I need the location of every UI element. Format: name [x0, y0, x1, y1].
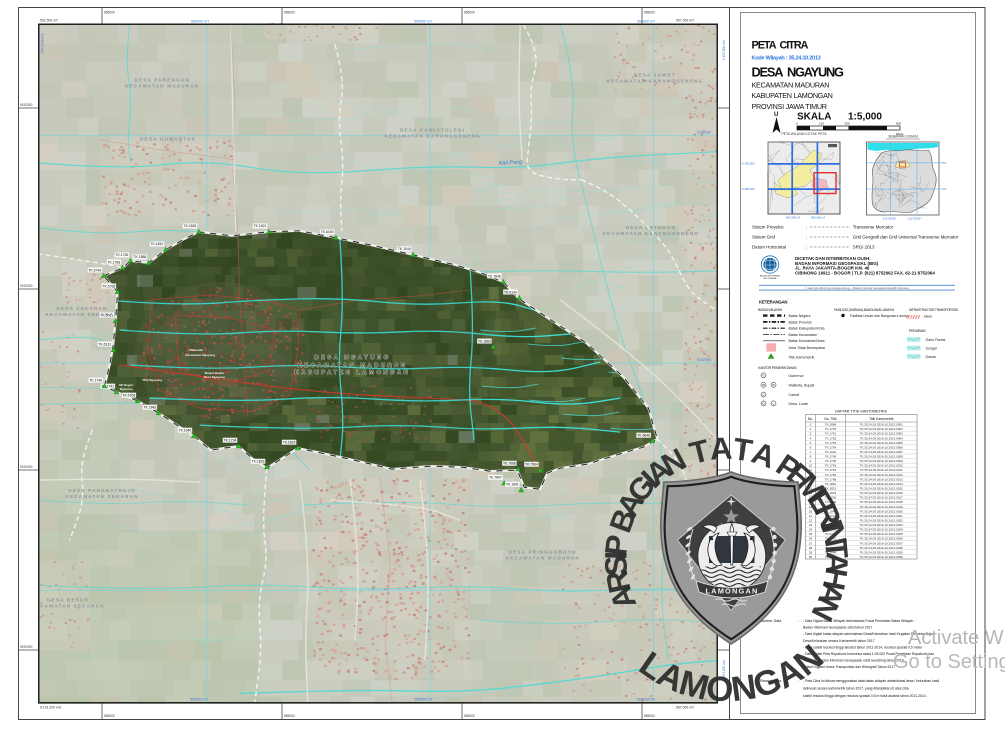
- svg-text:BATAS WILAYAH: BATAS WILAYAH: [758, 308, 783, 312]
- svg-text:W: W: [762, 383, 765, 387]
- svg-text:565000: 565000: [284, 11, 295, 15]
- svg-text:INFRASTRUKTUR TRANSPORTASI: INFRASTRUKTUR TRANSPORTASI: [909, 308, 958, 312]
- svg-text:BADAN INFORMASI: BADAN INFORMASI: [760, 275, 781, 278]
- svg-text::: :: [806, 245, 807, 250]
- svg-text:565 000mT: 565 000mT: [811, 216, 825, 220]
- svg-text::: :: [806, 235, 807, 240]
- svg-text:Sistem Proyeksi: Sistem Proyeksi: [752, 225, 783, 230]
- svg-text:565000: 565000: [464, 714, 475, 718]
- svg-text:9.191.200 mU: 9.191.200 mU: [40, 706, 62, 710]
- svg-text:PETA CITRA: PETA CITRA: [752, 40, 809, 52]
- svg-text:9.192.800 mU: 9.192.800 mU: [722, 39, 726, 60]
- svg-text:Transverse Mercator: Transverse Mercator: [853, 225, 894, 230]
- svg-text:Grid Geografi dan Grid Univers: Grid Geografi dan Grid Universal Transve…: [853, 235, 959, 240]
- svg-text:565000: 565000: [644, 11, 655, 15]
- svg-text:KABUPATEN LAMONGAN: KABUPATEN LAMONGAN: [752, 91, 833, 100]
- svg-text:566000 mT: 566000 mT: [637, 20, 656, 24]
- svg-text:Batas Kabupaten/Kota: Batas Kabupaten/Kota: [789, 327, 825, 331]
- svg-text:DESA NGAYUNG: DESA NGAYUNG: [752, 65, 845, 80]
- svg-text:KETERANGAN: KETERANGAN: [759, 300, 787, 305]
- svg-text:565000: 565000: [284, 714, 295, 718]
- svg-text:567.000 mT: 567.000 mT: [676, 19, 694, 23]
- svg-text:565000: 565000: [104, 714, 115, 718]
- svg-text:112°00'00": 112°00'00": [883, 217, 896, 221]
- svg-text:9 192 500: 9 192 500: [742, 162, 755, 166]
- svg-text:Sistem Grid: Sistem Grid: [752, 235, 775, 240]
- svg-text:562.500 mT: 562.500 mT: [40, 19, 58, 23]
- svg-text:Batas Kecamatan: Batas Kecamatan: [789, 333, 817, 337]
- svg-text:FASILITAS (SARANA) BANGUNAN LA: FASILITAS (SARANA) BANGUNAN LAINNYA: [834, 308, 895, 312]
- svg-text:Danau: Danau: [926, 355, 937, 359]
- svg-text:1:5,000: 1:5,000: [848, 112, 882, 123]
- svg-text:GEOSPASIAL: GEOSPASIAL: [763, 277, 778, 280]
- svg-text:Batas Provinsi: Batas Provinsi: [789, 320, 812, 324]
- svg-text:A: A: [709, 431, 733, 467]
- svg-text:250: 250: [845, 122, 850, 126]
- svg-text:562 500mT: 562 500mT: [786, 216, 800, 220]
- svg-text:9192000: 9192000: [20, 284, 33, 288]
- svg-text:PROVINSI JAWA TIMUR: PROVINSI JAWA TIMUR: [752, 102, 827, 111]
- svg-text:Gubernur: Gubernur: [789, 374, 805, 378]
- svg-text:Datum Horizontal: Datum Horizontal: [752, 245, 786, 250]
- svg-text:Area Tidak Bersepakat: Area Tidak Bersepakat: [789, 346, 825, 350]
- svg-text:KANTOR PEMERINTAHAN: KANTOR PEMERINTAHAN: [758, 366, 797, 370]
- svg-text:125: 125: [819, 122, 824, 126]
- svg-text:7°00': 7°00': [940, 161, 947, 165]
- svg-text:LAMONGAN: LAMONGAN: [705, 587, 758, 596]
- svg-text:112°30'00": 112°30'00": [908, 217, 921, 221]
- svg-text:565000: 565000: [104, 11, 115, 15]
- svg-text:Walikota, Bupati: Walikota, Bupati: [789, 383, 815, 387]
- svg-text:PERAIRAN: PERAIRAN: [909, 329, 926, 333]
- svg-text:Sungai: Sungai: [926, 346, 937, 350]
- svg-text:SRGI 2013: SRGI 2013: [853, 245, 875, 250]
- svg-text:565500 mT: 565500 mT: [414, 20, 433, 24]
- svg-text:9192000: 9192000: [20, 103, 33, 107]
- svg-text:PETA WILAYAH LETAK PETA: PETA WILAYAH LETAK PETA: [781, 132, 827, 136]
- svg-text:U: U: [774, 112, 778, 118]
- svg-text:9192000: 9192000: [20, 465, 33, 469]
- svg-text:Garis Pantai: Garis Pantai: [926, 338, 946, 342]
- svg-text:SKALA: SKALA: [797, 112, 831, 123]
- svg-text:CIBINONG 16911 - BOGOR | TLP.: CIBINONG 16911 - BOGOR | TLP. (021) 8752…: [795, 270, 935, 275]
- svg-text:500: 500: [896, 122, 901, 126]
- svg-text:565000: 565000: [464, 11, 475, 15]
- svg-text:Kode Wilayah : 35.24.10.2013: Kode Wilayah : 35.24.10.2013: [752, 56, 821, 62]
- svg-text:© Hak cipta dilindungi undang-: © Hak cipta dilindungi undang-undang — B…: [805, 286, 909, 290]
- svg-text:565000 mT: 565000 mT: [191, 20, 210, 24]
- svg-text:Jalan: Jalan: [924, 315, 933, 319]
- svg-text:7°15': 7°15': [940, 187, 947, 191]
- svg-text:B: B: [772, 383, 774, 387]
- svg-text::: :: [806, 225, 807, 230]
- svg-text:9 190 000: 9 190 000: [742, 187, 755, 191]
- svg-text:KECAMATAN MADURAN: KECAMATAN MADURAN: [752, 81, 830, 90]
- svg-text:Titik Kartometrik: Titik Kartometrik: [789, 355, 815, 359]
- svg-text:9192000: 9192000: [20, 645, 33, 649]
- svg-text:Batas Negara: Batas Negara: [789, 314, 811, 318]
- svg-text:Fasilitas Umum dan Bangunan La: Fasilitas Umum dan Bangunan Lainnya: [850, 314, 909, 318]
- svg-text:SEBARAN LOKASI: SEBARAN LOKASI: [888, 135, 917, 139]
- svg-text:P: P: [598, 533, 635, 558]
- svg-text:Batas Kelurahan/Desa: Batas Kelurahan/Desa: [789, 339, 825, 343]
